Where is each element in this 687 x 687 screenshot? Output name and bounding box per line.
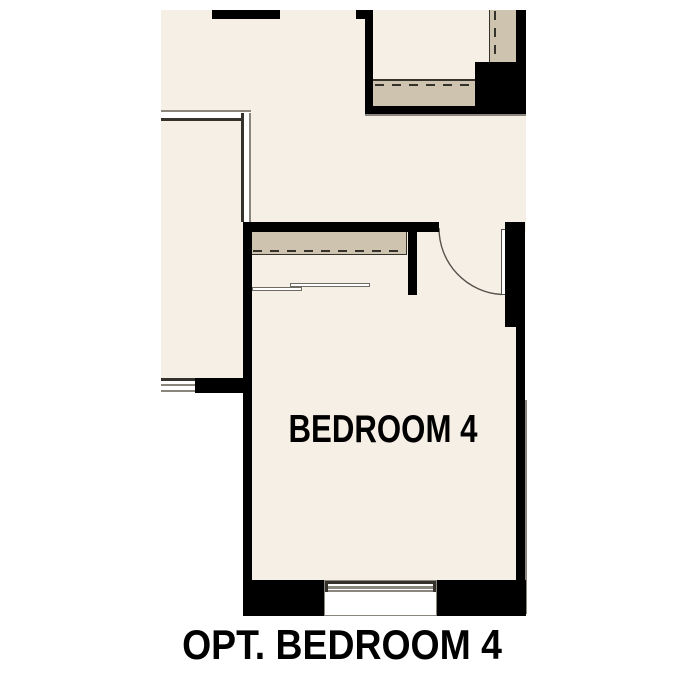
wall-leftroom-bottom	[195, 378, 243, 393]
wall-topcloset-right	[516, 10, 526, 62]
wall-topcloset-bottom	[373, 106, 475, 114]
wall-topcloset-left	[365, 10, 374, 114]
wall-corner-block-se	[437, 580, 526, 616]
wall-door-jamb-pier	[505, 222, 525, 327]
wall-top-segment	[212, 10, 280, 19]
wall-bedroom-left	[243, 222, 252, 616]
wall-topcloset-corner-block	[475, 62, 526, 114]
door-swing-arc	[0, 0, 687, 687]
wall-closet-divider	[408, 222, 417, 295]
floorplan-canvas: BEDROOM 4 OPT. BEDROOM 4	[0, 0, 687, 687]
plan-caption: OPT. BEDROOM 4	[176, 624, 507, 666]
wall-corner-block-sw	[252, 580, 324, 616]
room-label: BEDROOM 4	[279, 410, 487, 449]
